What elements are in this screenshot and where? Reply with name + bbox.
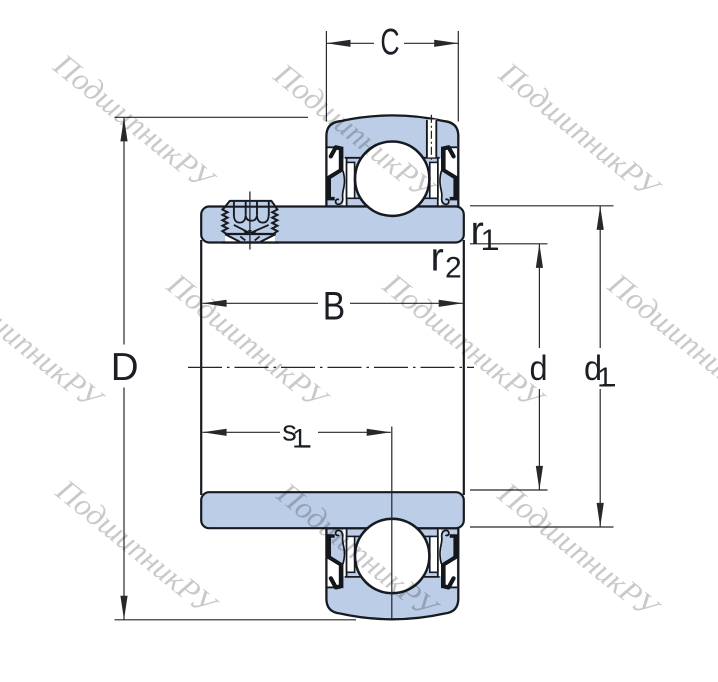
svg-text:1: 1 [292, 424, 307, 454]
svg-text:2: 2 [445, 252, 462, 285]
svg-text:B: B [323, 284, 345, 328]
svg-text:C: C [380, 21, 399, 62]
svg-text:1: 1 [597, 361, 613, 392]
svg-text:1: 1 [481, 224, 498, 257]
svg-text:r: r [431, 236, 444, 280]
svg-text:D: D [111, 346, 139, 389]
